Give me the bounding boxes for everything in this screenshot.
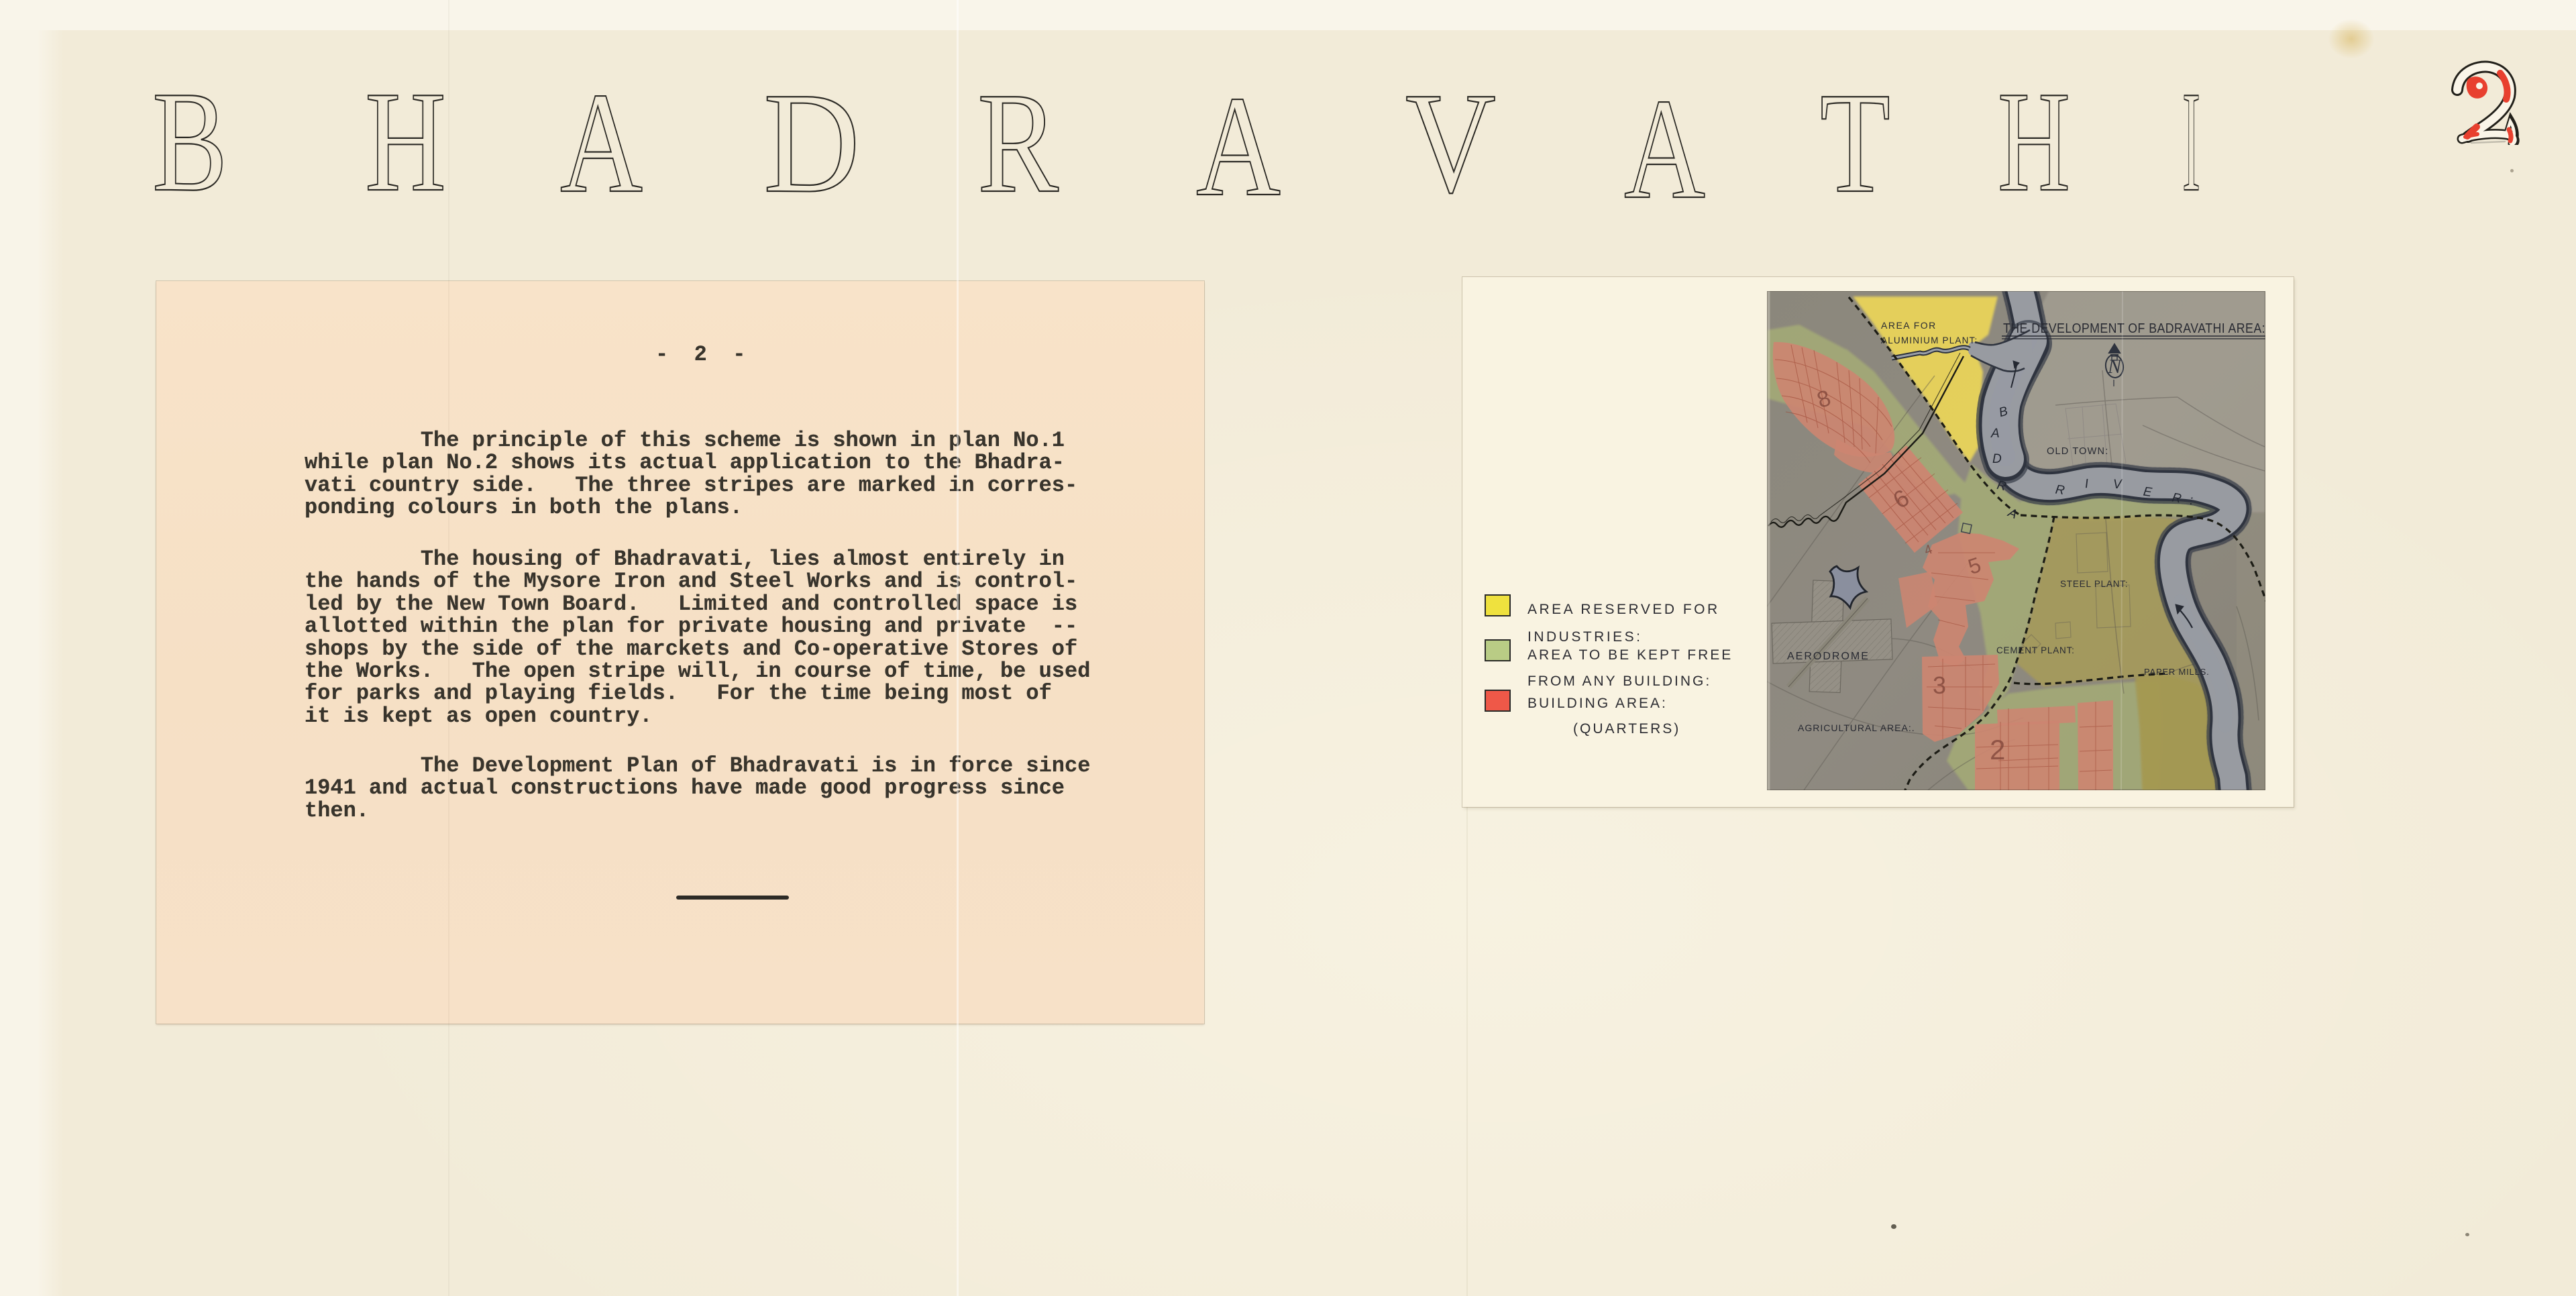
svg-text:A: A bbox=[1624, 68, 1705, 229]
svg-text:H: H bbox=[365, 61, 446, 221]
svg-text:R: R bbox=[977, 62, 1059, 223]
svg-text:D: D bbox=[763, 62, 860, 223]
svg-text:I: I bbox=[2182, 61, 2200, 221]
svg-text:H: H bbox=[1998, 61, 2070, 221]
svg-text:V: V bbox=[1405, 62, 1496, 223]
svg-text:A: A bbox=[560, 62, 643, 223]
svg-text:A: A bbox=[1196, 66, 1281, 226]
svg-text:B: B bbox=[152, 61, 227, 221]
svg-text:T: T bbox=[1820, 62, 1890, 223]
